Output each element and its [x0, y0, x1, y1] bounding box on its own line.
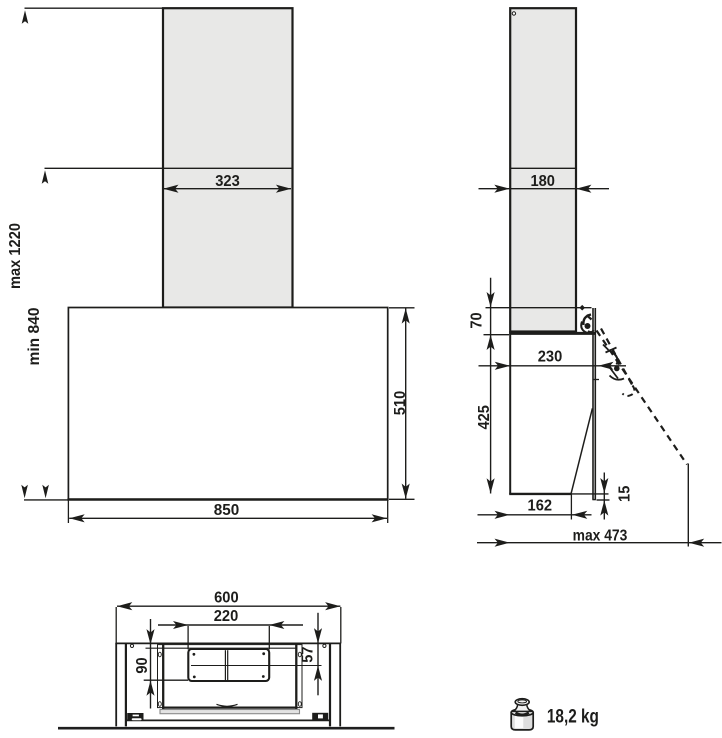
svg-text:850: 850: [214, 502, 240, 519]
svg-text:425: 425: [476, 405, 493, 430]
svg-text:max 473: max 473: [573, 527, 628, 544]
svg-text:230: 230: [538, 349, 563, 366]
svg-text:max 1220: max 1220: [7, 223, 24, 289]
svg-text:510: 510: [392, 391, 409, 416]
svg-text:162: 162: [528, 498, 553, 515]
svg-text:57: 57: [300, 646, 317, 662]
svg-text:70: 70: [469, 312, 486, 328]
svg-text:min 840: min 840: [26, 308, 43, 366]
svg-text:180: 180: [530, 173, 555, 190]
svg-text:220: 220: [214, 608, 239, 625]
svg-text:600: 600: [214, 589, 239, 606]
svg-text:90: 90: [134, 657, 151, 673]
svg-text:18,2 kg: 18,2 kg: [547, 705, 599, 727]
svg-text:323: 323: [215, 173, 240, 190]
svg-text:15: 15: [617, 485, 634, 502]
